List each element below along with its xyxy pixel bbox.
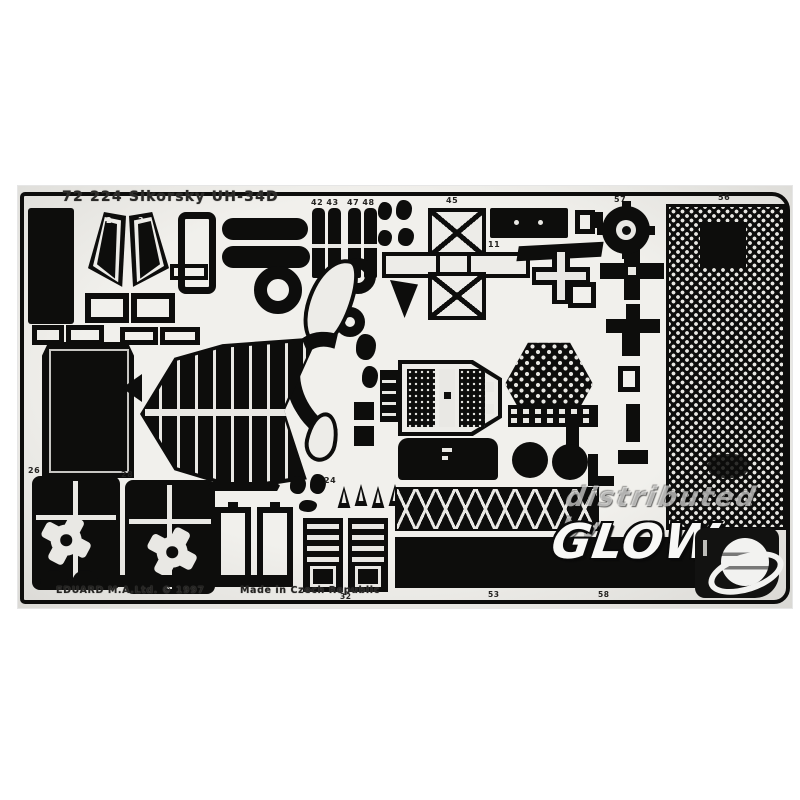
part-small-frame <box>170 264 208 280</box>
part-triangle <box>353 484 369 506</box>
part-frame <box>618 366 640 392</box>
part-inner <box>60 534 72 546</box>
part-windscreen-right <box>129 212 169 290</box>
origin-legend: Made in Czech Republic <box>240 585 380 596</box>
part-mesh-cutout <box>700 222 746 268</box>
part-bracket <box>356 334 376 360</box>
part-inner <box>628 267 636 275</box>
part-bracket <box>378 202 392 220</box>
part-door-frame <box>178 212 216 294</box>
part-inner <box>310 566 336 587</box>
part-triangle <box>370 486 386 508</box>
part-number-24: 24 <box>324 476 336 485</box>
part-tank-lower <box>222 246 310 268</box>
part-inner <box>97 221 117 281</box>
part-number-seats-left: 42 43 <box>311 198 339 207</box>
part-plate <box>626 404 640 442</box>
part-hole <box>514 220 519 225</box>
part-inner <box>622 252 631 259</box>
part-hull-strip <box>208 482 280 491</box>
part-number-32: 32 <box>340 592 351 601</box>
part-small-frame <box>575 210 595 234</box>
part-inner <box>442 456 448 460</box>
part-inner <box>352 524 384 566</box>
part-inner <box>511 418 595 423</box>
part-instrument-panel <box>398 360 502 436</box>
part-inner <box>358 489 364 501</box>
part-inner <box>138 221 160 281</box>
part-wedge <box>390 280 418 318</box>
part-door-inner-line <box>49 349 129 473</box>
part-bracket <box>398 228 414 246</box>
part-frame <box>85 293 129 323</box>
part-inner <box>407 369 435 427</box>
part-ribbed-bulkhead <box>140 338 312 490</box>
part-frame <box>160 327 200 345</box>
part-small-frame <box>568 282 596 308</box>
part-tank-upper <box>222 218 308 240</box>
part-inner <box>307 524 339 566</box>
part-number-seats-right: 47 48 <box>347 198 375 207</box>
part-inner <box>486 382 494 392</box>
part-number-3: 3 <box>138 216 144 225</box>
part-inner <box>166 546 178 558</box>
part-inner <box>220 474 226 483</box>
part-number-58: 58 <box>598 590 609 599</box>
part-inner <box>703 540 707 556</box>
part-cowl <box>398 438 498 480</box>
part-plate <box>354 402 374 420</box>
part-inner <box>536 272 586 280</box>
part-hole <box>538 220 543 225</box>
part-louver-panel <box>348 518 388 592</box>
product-photo-page: 72 224 Sikorsky UH-34D 2 3 42 43 47 48 4… <box>0 0 800 800</box>
part-inner <box>444 392 451 399</box>
maker-legend: EDUARD M.A.Ltd. © 1997 <box>56 585 205 596</box>
part-inner <box>442 448 452 452</box>
part-ring <box>254 266 302 314</box>
part-number-56: 56 <box>718 193 730 202</box>
part-number-26: 26 <box>28 466 40 475</box>
photo-etch-fret: 72 224 Sikorsky UH-34D 2 3 42 43 47 48 4… <box>18 186 792 608</box>
part-large-panel <box>28 208 74 324</box>
part-tread-bar <box>508 405 598 427</box>
part-inner <box>375 491 381 503</box>
part-inner <box>622 201 631 208</box>
part-inner <box>459 369 485 427</box>
part-inner <box>597 226 604 235</box>
part-number-2: 2 <box>106 216 112 225</box>
part-louver-panel <box>303 518 343 592</box>
part-inner <box>355 566 381 587</box>
part-bell <box>290 476 306 494</box>
part-inner <box>622 226 631 235</box>
part-frame <box>131 293 175 323</box>
part-clip <box>299 500 317 512</box>
part-inner <box>238 472 246 483</box>
part-fan-gear <box>148 528 196 576</box>
fret-title-text: 72 224 Sikorsky UH-34D <box>62 189 279 205</box>
part-ladder-strip <box>380 370 398 422</box>
part-open-frame <box>215 507 251 585</box>
distributor-globe-logo <box>695 528 779 598</box>
part-inner <box>648 226 655 235</box>
part-disc <box>552 444 588 480</box>
part-number-45: 45 <box>446 196 458 205</box>
part-inner <box>486 404 494 414</box>
part-plate <box>622 326 640 356</box>
part-number-28: 28 <box>121 470 133 479</box>
part-plate <box>354 426 374 446</box>
part-xbox-top <box>428 208 486 258</box>
part-triangle <box>336 486 352 508</box>
part-seat <box>312 208 325 278</box>
part-inner <box>341 491 347 503</box>
part-number-11: 11 <box>488 240 500 249</box>
part-plate <box>618 450 648 464</box>
part-disc <box>512 442 548 478</box>
part-inner <box>260 475 266 483</box>
part-bracket <box>378 230 392 246</box>
part-roof-panel <box>490 208 568 238</box>
part-inner <box>145 409 300 416</box>
part-inner <box>511 409 595 414</box>
part-bracket <box>396 200 412 220</box>
part-rotor-hub <box>602 206 650 254</box>
part-xbox-bottom <box>428 272 486 320</box>
part-number-53: 53 <box>488 590 499 599</box>
part-fan-gear <box>42 516 90 564</box>
part-mesh-shadow <box>708 454 748 478</box>
